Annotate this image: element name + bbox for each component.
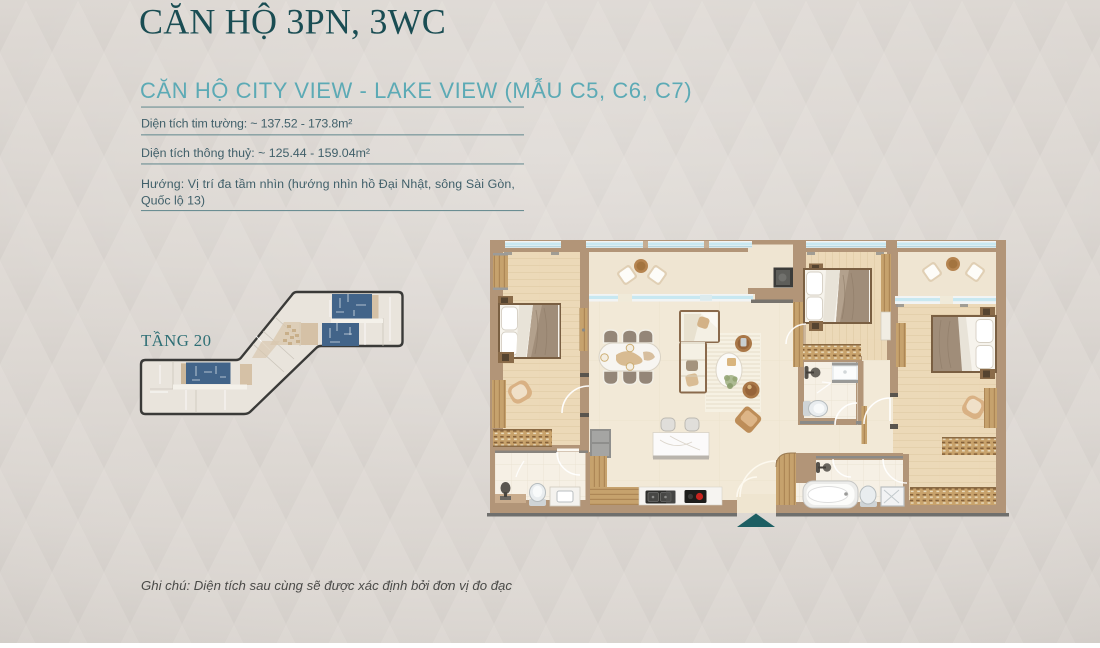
svg-text:Diện tích thông thuỷ: ~ 125.44: Diện tích thông thuỷ: ~ 125.44 - 159.04m… <box>141 146 370 160</box>
svg-text:CĂN HỘ 3PN, 3WC: CĂN HỘ 3PN, 3WC <box>139 2 446 42</box>
svg-text:Quốc lộ 13): Quốc lộ 13) <box>141 194 205 208</box>
svg-text:TẦNG 20: TẦNG 20 <box>141 331 211 350</box>
svg-text:CĂN HỘ CITY VIEW - LAKE VIEW (: CĂN HỘ CITY VIEW - LAKE VIEW (MẪU C5, C6… <box>140 77 692 103</box>
svg-text:Ghi chú: Diện tích sau cùng sẽ: Ghi chú: Diện tích sau cùng sẽ được xác … <box>141 578 512 593</box>
svg-text:Hướng: Vị trí đa tầm nhìn (hướ: Hướng: Vị trí đa tầm nhìn (hướng nhìn hồ… <box>141 177 515 191</box>
svg-text:Diện tích tim tường: ~ 137.52: Diện tích tim tường: ~ 137.52 - 173.8m² <box>141 117 352 131</box>
